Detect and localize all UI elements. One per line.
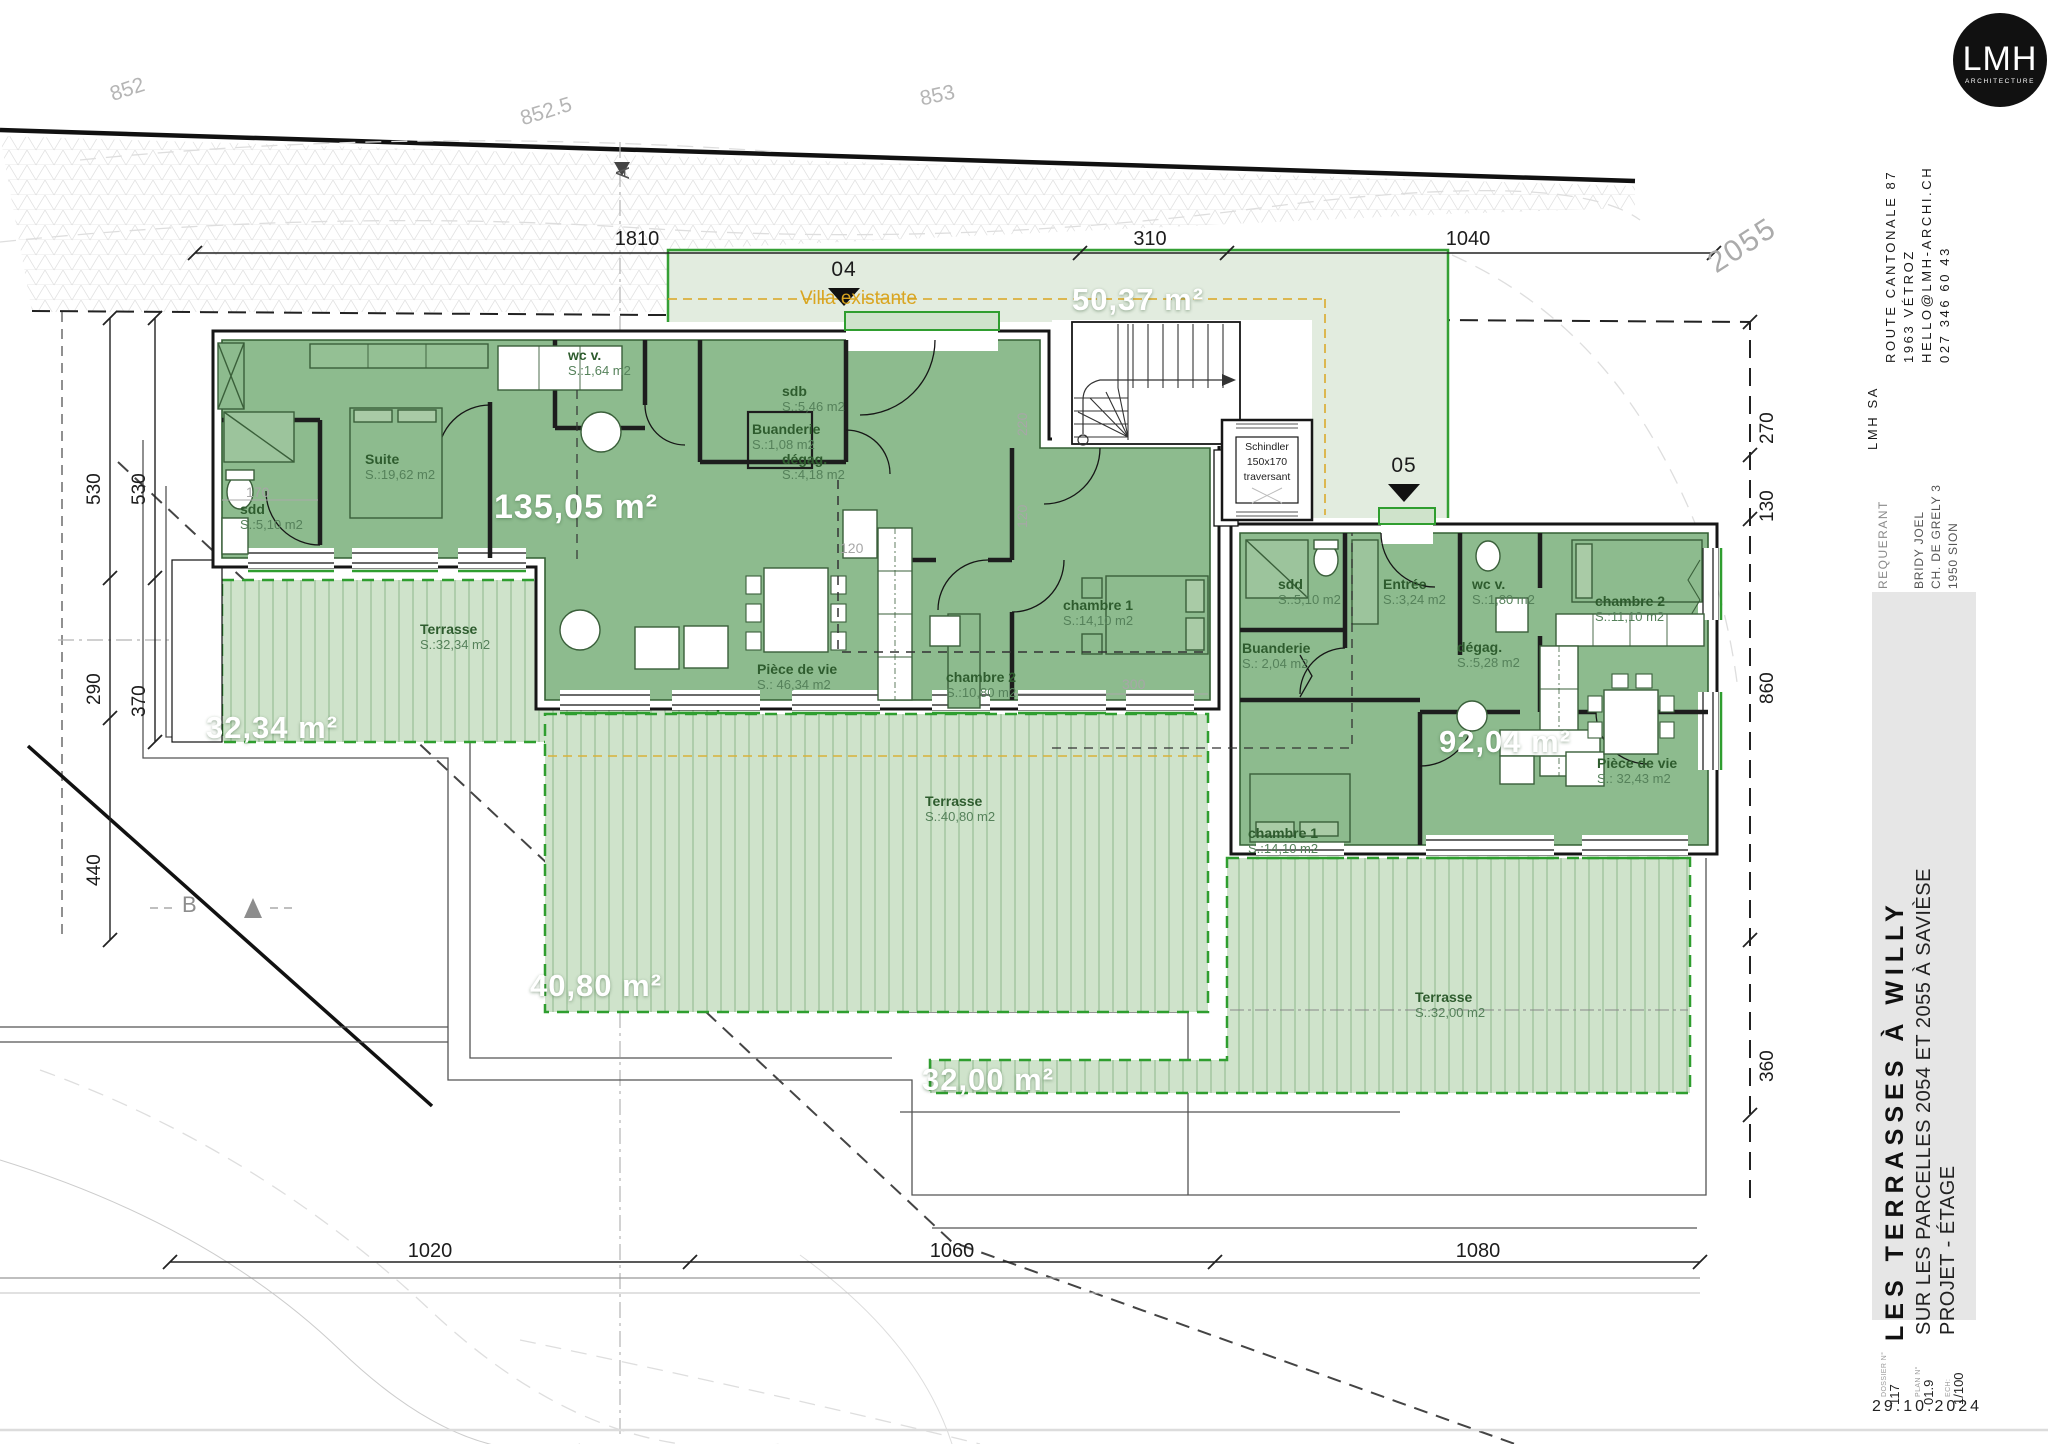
firm-email: HELLO@LMH-ARCHI.CH: [1919, 166, 1934, 363]
terrace-label-mid: TerrasseS.:40,80 m2: [925, 794, 995, 824]
firm-address: ROUTE CANTONALE 87: [1883, 170, 1898, 363]
room-label-sdd-04: sddS.:5,10 m2: [240, 502, 303, 532]
requerant-name: BRIDY JOEL: [1912, 511, 1926, 589]
dim-right-360: 360: [1757, 1050, 1779, 1082]
area-villa: 50,37 m²: [1072, 282, 1204, 318]
room-label-buanderie-04: BuanderieS.:1,08 m2: [752, 422, 820, 452]
room-label-sdd-05: sddS.:5,10 m2: [1278, 577, 1341, 607]
project-subtitle: SUR LES PARCELLES 2054 ET 2055 À SAVIÈSE: [1913, 868, 1936, 1335]
room-label-chambre1-05: chambre 1S.:14,10 m2: [1248, 826, 1318, 856]
entry-05-marker: 05: [1391, 454, 1416, 478]
terrace-label-04: TerrasseS.:32,34 m2: [420, 622, 490, 652]
lmh-logo: LMH ARCHITECTURE: [1953, 13, 2047, 107]
logo-text: LMH: [1963, 42, 2038, 76]
dim-right-270: 270: [1757, 412, 1779, 444]
room-label-buanderie-05: BuanderieS.: 2,04 m2: [1242, 641, 1310, 671]
firm-name: LMH SA: [1865, 386, 1880, 450]
requerant-label: REQUERANT: [1876, 500, 1890, 589]
room-label-entree-05: EntréeS.:3,24 m2: [1383, 577, 1446, 607]
room-label-wc-05: wc v.S.:1,80 m2: [1472, 577, 1535, 607]
room-label-chambre1-04: chambre 1S.:14,10 m2: [1063, 598, 1133, 628]
dim-left-inner-370: 370: [129, 685, 151, 717]
requerant-city: 1950 SION: [1946, 522, 1960, 589]
entry-04-marker: 04: [831, 258, 856, 282]
room-label-sdb-04: sdbS.:5,46 m2: [782, 384, 845, 414]
plan-date: 29.10.2024: [1872, 1398, 1982, 1416]
dim-int-300: 300: [1122, 676, 1145, 692]
floor-plan-sheet: SuiteS.:19,62 m2 sddS.:5,10 m2 wc v.S.:1…: [0, 0, 2048, 1444]
room-label-degag-05: dégag.S.:5,28 m2: [1457, 640, 1520, 670]
area-apt04: 135,05 m²: [494, 488, 658, 527]
dim-int-170: 170: [246, 484, 269, 500]
dim-bottom-1080: 1080: [1456, 1240, 1501, 1263]
requerant-street: CH. DE GRELY 3: [1929, 484, 1943, 589]
dim-bottom-1060: 1060: [930, 1240, 975, 1263]
room-label-chambre2-05: chambre 2S.:11,10 m2: [1595, 594, 1665, 624]
area-terrasse04: 32,34 m²: [206, 710, 338, 746]
dim-left-290: 290: [84, 673, 106, 705]
dim-int-220: 220: [1014, 413, 1030, 436]
terrace-label-05: TerrasseS.:32,00 m2: [1415, 990, 1485, 1020]
room-label-suite: SuiteS.:19,62 m2: [365, 452, 435, 482]
dim-left-440: 440: [84, 854, 106, 886]
room-label-degag-04: dégag.S.:4,18 m2: [782, 452, 845, 482]
room-label-chambre2-04: chambre 2S.:10,80 m2: [946, 670, 1016, 700]
dim-right-860: 860: [1757, 672, 1779, 704]
elevator-label: Schindler150x170traversant: [1232, 440, 1302, 486]
dim-left-530: 530: [84, 473, 106, 505]
firm-phone: 027 346 60 43: [1937, 246, 1952, 363]
project-phase: PROJET - ÉTAGE: [1937, 1165, 1960, 1335]
dim-int-120h: 120: [840, 540, 863, 556]
dim-right-130: 130: [1757, 490, 1779, 522]
room-label-piece-de-vie-04: Pièce de vieS.: 46,34 m2: [757, 662, 837, 692]
villa-existante-label: Villa existante: [800, 288, 917, 310]
room-label-piece-de-vie-05: Pièce de vieS.: 32,43 m2: [1597, 756, 1677, 786]
project-title: LES TERRASSES À WILLY: [1881, 899, 1910, 1341]
area-terrasse-mid: 40,80 m²: [530, 968, 662, 1004]
section-b-marker: B: [182, 892, 197, 918]
firm-city: 1963 VÉTROZ: [1901, 249, 1916, 363]
dim-bottom-1020: 1020: [408, 1240, 453, 1263]
dim-left-inner-530: 530: [129, 473, 151, 505]
area-apt05: 92,04 m²: [1439, 724, 1571, 760]
area-terrasse05: 32,00 m²: [922, 1062, 1054, 1098]
section-a-marker: A: [613, 167, 634, 179]
room-label-wc-04: wc v.S.:1,64 m2: [568, 348, 631, 378]
dim-top-1810: 1810: [615, 228, 660, 251]
dim-top-1040: 1040: [1446, 228, 1491, 251]
dim-top-310: 310: [1133, 228, 1166, 251]
dim-int-120v: 120: [1014, 505, 1030, 528]
section-b-arrow-icon: [244, 898, 262, 918]
